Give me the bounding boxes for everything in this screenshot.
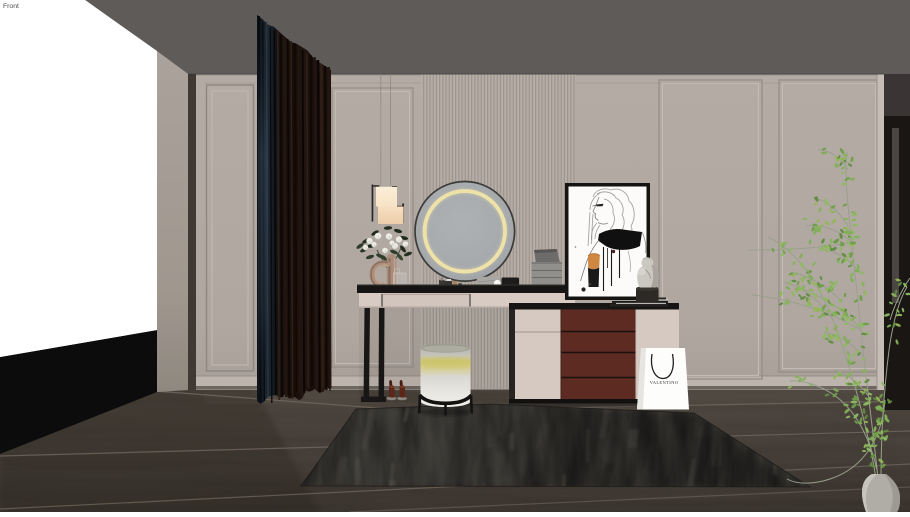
svg-text:Front: Front	[3, 3, 19, 10]
svg-text:VALENTINO: VALENTINO	[650, 380, 679, 385]
